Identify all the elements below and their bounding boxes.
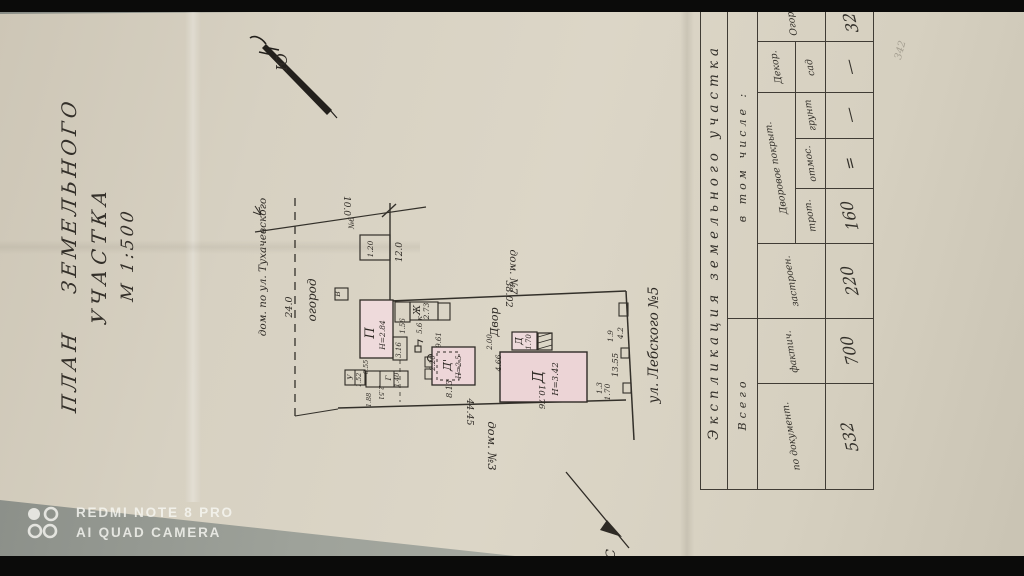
label-yard: Двор bbox=[488, 307, 501, 337]
shed-g-label: Г bbox=[384, 374, 393, 381]
gate-structure bbox=[360, 235, 390, 260]
building-zh-area: 2.73 bbox=[422, 302, 431, 320]
dim-street-1355: 13.55 bbox=[611, 353, 621, 377]
value-by-documents: 532 bbox=[826, 384, 874, 490]
value-built: 220 bbox=[826, 243, 874, 318]
col-header-blind-area: отмос. bbox=[796, 138, 826, 188]
boundary-bottom-left bbox=[295, 409, 338, 416]
dim-188: 1.88 bbox=[365, 393, 373, 407]
dim-gate-120: 1.20 bbox=[366, 240, 375, 257]
shed-v-label: В bbox=[333, 291, 342, 298]
boundary-top-diagonal bbox=[255, 207, 426, 232]
compass-needle-south bbox=[250, 37, 337, 118]
well-pump-flag bbox=[418, 340, 423, 346]
dim-front-10: 10.0 bbox=[341, 196, 351, 216]
camera-watermark: REDMI NOTE 8 PRO AI QUAD CAMERA bbox=[26, 503, 234, 543]
shed-cell bbox=[438, 303, 450, 320]
col-header-sidewalk: трот. bbox=[796, 189, 826, 243]
col-group-decorative: Декор. bbox=[758, 42, 796, 92]
dim-bottom-4445: 44.45 bbox=[464, 397, 475, 425]
dim-055: 0.55 bbox=[362, 360, 370, 374]
watermark-device: REDMI NOTE 8 PRO bbox=[76, 503, 234, 523]
watermark-camera: AI QUAD CAMERA bbox=[76, 523, 234, 543]
shed-g-area: 1.40 bbox=[393, 373, 401, 387]
dim-street-42: 4.2 bbox=[616, 327, 625, 340]
col-header-built: застроен. bbox=[758, 243, 826, 318]
col-header-ground: грунт bbox=[796, 92, 826, 138]
table-title: Экспликация земельного участка bbox=[701, 0, 728, 490]
dim-garden-24: 24.0 bbox=[284, 296, 295, 318]
value-ground: — bbox=[826, 92, 874, 138]
col-header-by-documents: по документ. bbox=[758, 384, 826, 490]
dim-961: 9.61 bbox=[435, 332, 443, 348]
photo-bottom-bar bbox=[0, 556, 1024, 576]
label-street: ул. Лебского №5 bbox=[646, 287, 662, 405]
compass-label-south: Ю bbox=[273, 53, 291, 72]
well-pump bbox=[415, 346, 421, 352]
photo-frame: ПЛАН ЗЕМЕЛЬНОГО УЧАСТКА М 1:500 Ю С bbox=[0, 0, 1024, 576]
plan-scale: М 1:500 bbox=[118, 84, 138, 427]
dim-156: 1.56 bbox=[399, 318, 407, 334]
dim-street-170: 1.70 bbox=[603, 383, 612, 400]
boundary-street bbox=[626, 291, 634, 440]
compass-arrow-north bbox=[566, 472, 629, 548]
street-structure bbox=[621, 348, 629, 358]
shed-u-label: У bbox=[346, 374, 355, 380]
label-garden: огород bbox=[305, 278, 319, 321]
value-sidewalk: 160 bbox=[826, 189, 874, 243]
value-actual: 700 bbox=[826, 318, 874, 383]
col-group-including: в том числе : bbox=[728, 0, 758, 318]
plan-title: ПЛАН ЗЕМЕЛЬНОГО УЧАСТКА М 1:500 bbox=[57, 85, 167, 425]
street-structure bbox=[623, 383, 631, 393]
building-d-label: Д bbox=[529, 370, 547, 384]
photo-top-bar bbox=[0, 0, 1024, 12]
col-group-yard-surface: Дворовое покрыт. bbox=[758, 92, 796, 243]
dim-1076: 10.76 bbox=[536, 385, 546, 410]
dim-top-3802: 38.02 bbox=[503, 280, 514, 307]
building-p-label: П bbox=[363, 327, 378, 340]
dim-251: 2.51 bbox=[377, 385, 385, 400]
explication-table: Экспликация земельного участка Всего в т… bbox=[700, 0, 872, 490]
dim-316: 3.16 bbox=[395, 342, 403, 358]
col-header-actual: фактич. bbox=[758, 318, 826, 383]
hatched-structure bbox=[538, 333, 552, 350]
label-house-3: дом. №3 bbox=[485, 421, 499, 470]
site-plan-drawing: Ю С bbox=[230, 20, 690, 565]
gate-number: №6 bbox=[347, 217, 356, 230]
dim-220: 2.20 bbox=[429, 355, 437, 372]
dim-466: 4.66 bbox=[494, 354, 503, 372]
col-header-garden: сад bbox=[796, 42, 826, 92]
building-d-annex-label: Д bbox=[514, 337, 525, 346]
plan-title-line1: ПЛАН ЗЕМЕЛЬНОГО bbox=[57, 83, 81, 426]
building-p-height: Н=2.84 bbox=[378, 320, 387, 351]
building-d1-height: Н=2.5 bbox=[455, 355, 463, 380]
shed-u-area: 1.52 bbox=[355, 373, 363, 387]
building-d-annex-area: 1.70 bbox=[525, 334, 533, 350]
value-garden: — bbox=[826, 42, 874, 92]
dim-street-19: 1.9 bbox=[606, 330, 615, 342]
dimension-tick bbox=[382, 204, 396, 217]
plan-title-line2: УЧАСТКА bbox=[87, 83, 111, 426]
building-d-height: Н=3.42 bbox=[551, 362, 561, 396]
value-blind-area: = bbox=[826, 138, 874, 188]
label-tukhachevsky-house: дом. по ул. Тухачевского bbox=[257, 198, 269, 336]
quad-camera-icon bbox=[26, 506, 62, 540]
col-group-total: Всего bbox=[728, 318, 758, 489]
dim-200: 2.00 bbox=[486, 334, 494, 351]
dim-side-12: 12.0 bbox=[395, 242, 405, 262]
building-d1-label: Д' bbox=[441, 359, 454, 372]
dim-813: 8.13 bbox=[445, 380, 454, 398]
